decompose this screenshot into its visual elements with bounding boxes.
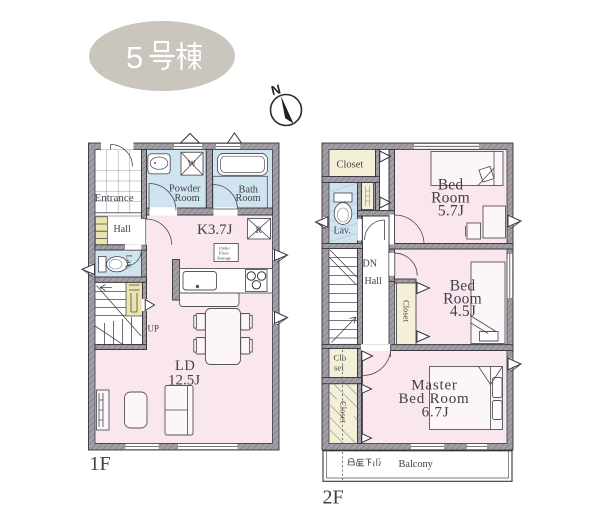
svg-text:Lav.: Lav.: [125, 255, 135, 270]
svg-text:Storage: Storage: [217, 256, 231, 261]
svg-text:UP: UP: [148, 324, 160, 334]
svg-text:Room: Room: [236, 193, 261, 204]
svg-text:5.7J: 5.7J: [438, 203, 464, 220]
svg-text:6.7J: 6.7J: [422, 405, 450, 421]
svg-text:Closet: Closet: [402, 300, 412, 323]
svg-text:Lav.: Lav.: [334, 226, 351, 237]
svg-text:W: W: [188, 159, 197, 169]
svg-text:5: 5: [126, 40, 143, 75]
svg-text:Room: Room: [175, 193, 200, 204]
svg-text:Entrance: Entrance: [95, 192, 134, 204]
svg-text:2F: 2F: [323, 487, 344, 509]
svg-text:DN: DN: [363, 259, 377, 270]
svg-text:1F: 1F: [90, 453, 111, 475]
svg-text:Closet: Closet: [339, 401, 349, 424]
svg-text:Closet: Closet: [337, 160, 364, 171]
svg-text:K3.7J: K3.7J: [197, 222, 233, 238]
svg-text:Balcony: Balcony: [399, 459, 434, 470]
svg-text:4.5J: 4.5J: [450, 303, 476, 320]
svg-text:Clo: Clo: [334, 353, 347, 363]
svg-text:Hall: Hall: [365, 276, 382, 287]
svg-text:R: R: [256, 226, 263, 236]
svg-text:Hall: Hall: [114, 224, 131, 235]
